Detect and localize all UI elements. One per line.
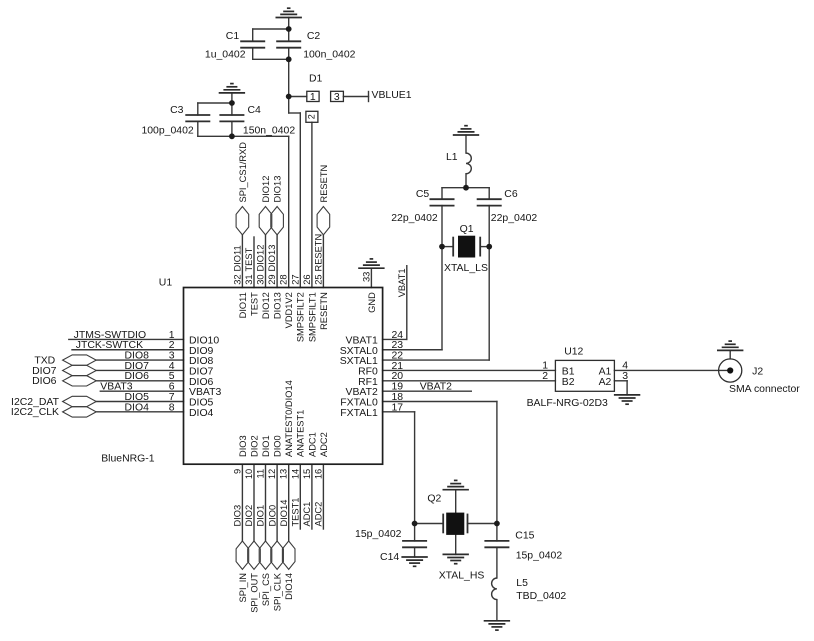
svg-text:100n_0402: 100n_0402 xyxy=(303,50,355,61)
svg-text:16: 16 xyxy=(313,469,323,479)
svg-text:TXD: TXD xyxy=(34,355,55,366)
svg-text:1: 1 xyxy=(542,361,548,372)
svg-text:DIO13: DIO13 xyxy=(273,176,283,203)
svg-text:D1: D1 xyxy=(309,74,323,85)
svg-text:XTAL_LS: XTAL_LS xyxy=(444,263,488,274)
svg-text:DIO12: DIO12 xyxy=(261,292,271,319)
svg-text:DIO6: DIO6 xyxy=(125,371,150,382)
svg-text:C1: C1 xyxy=(226,31,240,42)
svg-text:DIO3: DIO3 xyxy=(233,505,243,527)
svg-text:GND: GND xyxy=(367,292,377,313)
svg-text:DIO7: DIO7 xyxy=(125,361,150,372)
svg-text:4: 4 xyxy=(169,361,175,372)
svg-text:32: 32 xyxy=(232,274,242,284)
svg-text:5: 5 xyxy=(169,371,175,382)
svg-text:DIO10: DIO10 xyxy=(189,335,219,346)
svg-text:8: 8 xyxy=(169,402,175,413)
svg-text:VBAT1: VBAT1 xyxy=(397,269,407,298)
svg-text:DIO14: DIO14 xyxy=(279,500,289,527)
svg-text:ADC1: ADC1 xyxy=(302,502,312,527)
svg-text:TEST: TEST xyxy=(244,247,254,271)
svg-text:1: 1 xyxy=(169,330,175,341)
svg-text:DIO2: DIO2 xyxy=(244,505,254,527)
svg-text:DIO2: DIO2 xyxy=(249,435,259,457)
svg-text:VBAT2: VBAT2 xyxy=(346,387,378,398)
svg-text:22: 22 xyxy=(392,351,404,362)
svg-text:26: 26 xyxy=(302,274,312,284)
svg-text:DIO6: DIO6 xyxy=(32,376,57,387)
svg-text:19: 19 xyxy=(392,382,404,393)
svg-text:7: 7 xyxy=(169,392,175,403)
svg-text:VBAT1: VBAT1 xyxy=(346,335,378,346)
svg-text:15p_0402: 15p_0402 xyxy=(355,529,402,540)
svg-text:DIO3: DIO3 xyxy=(238,435,248,457)
svg-text:33: 33 xyxy=(361,272,371,282)
svg-text:C6: C6 xyxy=(504,189,518,200)
svg-text:FXTAL1: FXTAL1 xyxy=(340,408,378,419)
svg-text:B2: B2 xyxy=(562,377,575,388)
svg-text:C5: C5 xyxy=(416,189,430,200)
svg-text:SXTAL1: SXTAL1 xyxy=(340,356,378,367)
svg-text:2: 2 xyxy=(306,114,316,119)
svg-text:150n_0402: 150n_0402 xyxy=(243,126,295,137)
svg-text:ANATEST0/DIO14: ANATEST0/DIO14 xyxy=(284,380,294,457)
svg-text:C4: C4 xyxy=(248,105,262,116)
svg-text:DIO13: DIO13 xyxy=(267,245,277,272)
svg-text:SPI_IN: SPI_IN xyxy=(238,573,248,602)
svg-text:Q1: Q1 xyxy=(460,224,474,235)
svg-text:VBLUE1: VBLUE1 xyxy=(372,90,412,101)
svg-text:1u_0402: 1u_0402 xyxy=(205,50,246,61)
svg-text:2: 2 xyxy=(169,340,175,351)
svg-text:30: 30 xyxy=(256,274,266,284)
svg-text:BALF-NRG-02D3: BALF-NRG-02D3 xyxy=(527,398,608,409)
svg-text:RESETN: RESETN xyxy=(319,165,329,203)
svg-text:14: 14 xyxy=(290,469,300,479)
svg-text:DIO4: DIO4 xyxy=(189,408,214,419)
svg-text:C15: C15 xyxy=(515,531,534,542)
svg-text:XTAL_HS: XTAL_HS xyxy=(439,570,485,581)
svg-text:A1: A1 xyxy=(599,366,612,377)
svg-text:DIO5: DIO5 xyxy=(125,392,150,403)
svg-text:VBAT2: VBAT2 xyxy=(420,381,452,392)
svg-text:24: 24 xyxy=(392,330,404,341)
svg-text:DIO12: DIO12 xyxy=(256,245,266,272)
svg-text:3: 3 xyxy=(622,371,628,382)
svg-text:22p_0402: 22p_0402 xyxy=(391,213,438,224)
svg-text:J2: J2 xyxy=(752,366,763,377)
svg-text:22p_0402: 22p_0402 xyxy=(491,213,538,224)
svg-text:JTCK-SWTCK: JTCK-SWTCK xyxy=(76,340,143,351)
svg-text:JTMS-SWTDIO: JTMS-SWTDIO xyxy=(74,330,146,341)
svg-text:FXTAL0: FXTAL0 xyxy=(340,398,378,409)
svg-text:VBAT3: VBAT3 xyxy=(189,387,221,398)
svg-text:A2: A2 xyxy=(599,377,612,388)
svg-text:TEST: TEST xyxy=(249,292,259,316)
svg-text:15p_0402: 15p_0402 xyxy=(516,551,563,562)
svg-text:2: 2 xyxy=(542,371,548,382)
svg-text:Q2: Q2 xyxy=(427,494,441,505)
svg-text:ADC1: ADC1 xyxy=(307,432,317,457)
svg-text:RESETN: RESETN xyxy=(313,234,323,272)
svg-text:L1: L1 xyxy=(446,152,458,163)
svg-text:12: 12 xyxy=(267,469,277,479)
svg-text:11: 11 xyxy=(256,469,266,479)
svg-text:RESETN: RESETN xyxy=(319,292,329,330)
svg-text:SPI_CLK: SPI_CLK xyxy=(273,572,283,611)
svg-text:20: 20 xyxy=(392,371,404,382)
svg-text:C14: C14 xyxy=(380,552,399,563)
svg-text:3: 3 xyxy=(334,92,340,103)
svg-text:ADC2: ADC2 xyxy=(314,502,324,527)
svg-text:SPI_CS: SPI_CS xyxy=(261,573,271,606)
svg-text:I2C2_CLK: I2C2_CLK xyxy=(11,407,59,418)
svg-text:DIO4: DIO4 xyxy=(125,402,150,413)
svg-text:DIO1: DIO1 xyxy=(261,435,271,457)
svg-text:18: 18 xyxy=(392,392,404,403)
svg-text:DIO0: DIO0 xyxy=(273,435,283,457)
svg-text:DIO5: DIO5 xyxy=(189,398,214,409)
svg-text:DIO7: DIO7 xyxy=(189,366,214,377)
svg-text:DIO13: DIO13 xyxy=(273,292,283,319)
svg-text:10: 10 xyxy=(244,469,254,479)
svg-text:DIO11: DIO11 xyxy=(238,292,248,318)
svg-text:SXTAL0: SXTAL0 xyxy=(340,346,378,357)
svg-text:29: 29 xyxy=(267,274,277,284)
svg-text:DIO12: DIO12 xyxy=(261,176,271,203)
svg-text:L5: L5 xyxy=(516,578,528,589)
svg-text:21: 21 xyxy=(392,361,404,372)
svg-text:100p_0402: 100p_0402 xyxy=(141,126,193,137)
svg-text:ANATEST1: ANATEST1 xyxy=(296,410,306,457)
svg-text:DIO8: DIO8 xyxy=(189,356,214,367)
svg-text:25: 25 xyxy=(313,274,323,284)
svg-text:23: 23 xyxy=(392,340,404,351)
svg-text:TBD_0402: TBD_0402 xyxy=(516,591,566,602)
svg-text:SPI_OUT: SPI_OUT xyxy=(249,573,259,613)
svg-text:I2C2_DAT: I2C2_DAT xyxy=(11,397,60,408)
svg-text:U1: U1 xyxy=(159,278,173,289)
svg-text:DIO8: DIO8 xyxy=(125,351,150,362)
svg-text:BlueNRG-1: BlueNRG-1 xyxy=(101,453,155,464)
svg-text:31: 31 xyxy=(244,274,254,284)
svg-text:28: 28 xyxy=(279,274,289,284)
svg-text:VDD1V2: VDD1V2 xyxy=(284,292,294,328)
svg-text:DIO0: DIO0 xyxy=(267,505,277,527)
svg-text:DIO14: DIO14 xyxy=(284,573,294,600)
svg-text:DIO6: DIO6 xyxy=(189,377,214,388)
svg-text:SPI_CS1/RXD: SPI_CS1/RXD xyxy=(238,142,248,203)
svg-text:C3: C3 xyxy=(170,105,184,116)
svg-text:TEST1: TEST1 xyxy=(291,498,301,527)
svg-text:1: 1 xyxy=(310,92,316,103)
svg-text:DIO1: DIO1 xyxy=(256,505,266,527)
svg-text:SMPSFILT1: SMPSFILT1 xyxy=(307,292,317,342)
svg-text:RF1: RF1 xyxy=(358,377,378,388)
svg-text:DIO11: DIO11 xyxy=(232,245,242,271)
svg-text:U12: U12 xyxy=(564,347,583,358)
svg-text:C2: C2 xyxy=(307,31,321,42)
svg-text:3: 3 xyxy=(169,351,175,362)
svg-text:6: 6 xyxy=(169,382,175,393)
svg-text:SMA connector: SMA connector xyxy=(729,384,800,395)
svg-text:DIO7: DIO7 xyxy=(32,366,57,377)
svg-text:ADC2: ADC2 xyxy=(319,432,329,457)
svg-text:9: 9 xyxy=(232,469,242,474)
svg-text:27: 27 xyxy=(290,274,300,284)
svg-text:4: 4 xyxy=(622,361,628,372)
svg-text:DIO9: DIO9 xyxy=(189,346,214,357)
svg-text:RF0: RF0 xyxy=(358,366,378,377)
svg-text:SMPSFILT2: SMPSFILT2 xyxy=(296,292,306,342)
svg-text:15: 15 xyxy=(302,469,312,479)
svg-text:13: 13 xyxy=(279,469,289,479)
svg-text:B1: B1 xyxy=(562,366,575,377)
svg-text:VBAT3: VBAT3 xyxy=(100,382,132,393)
svg-text:17: 17 xyxy=(392,402,404,413)
